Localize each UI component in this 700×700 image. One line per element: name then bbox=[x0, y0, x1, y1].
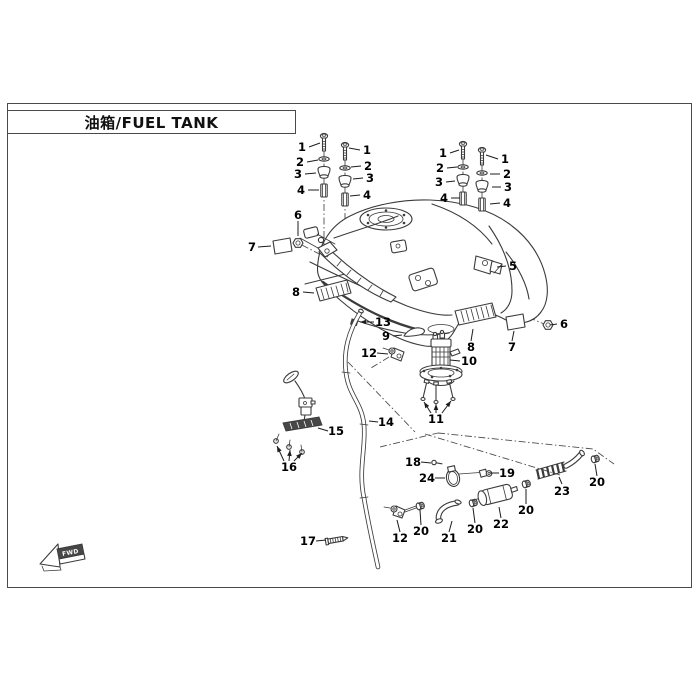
callout-21: 21 bbox=[441, 531, 457, 545]
callout-leader bbox=[316, 540, 326, 541]
fwd-arrow: FWD bbox=[40, 544, 85, 571]
callout-leader bbox=[351, 166, 361, 167]
callout-4: 4 bbox=[363, 188, 371, 202]
callout-4: 4 bbox=[503, 196, 511, 210]
callout-3: 3 bbox=[294, 167, 302, 181]
hose-clamp-3 bbox=[522, 480, 531, 489]
screw bbox=[325, 535, 348, 545]
exploded-diagram: FWD 112233446711223344567881391210111415… bbox=[0, 0, 700, 700]
hose-clamp-1 bbox=[416, 502, 425, 511]
tank-latch bbox=[390, 240, 407, 253]
leader-arrowhead bbox=[277, 446, 282, 452]
callout-leader bbox=[309, 143, 320, 147]
callout-leader bbox=[421, 462, 431, 463]
callout-2: 2 bbox=[436, 161, 444, 175]
callout-2: 2 bbox=[503, 167, 511, 181]
callout-10: 10 bbox=[461, 354, 477, 368]
callout-24: 24 bbox=[419, 471, 435, 485]
callout-1: 1 bbox=[298, 140, 306, 154]
callout-1: 1 bbox=[439, 146, 447, 160]
callout-13: 13 bbox=[375, 315, 391, 329]
callout-1: 1 bbox=[501, 152, 509, 166]
callout-1: 1 bbox=[363, 143, 371, 157]
leader-arrowhead bbox=[434, 404, 439, 410]
callout-leader bbox=[486, 155, 498, 159]
callout-22: 22 bbox=[493, 517, 509, 531]
leader-arrowhead bbox=[446, 401, 451, 407]
callout-leader bbox=[369, 421, 378, 422]
callout-8: 8 bbox=[467, 340, 475, 354]
callout-3: 3 bbox=[504, 180, 512, 194]
callout-4: 4 bbox=[440, 191, 448, 205]
hose-clamp-4 bbox=[591, 455, 600, 464]
clamp-screw bbox=[432, 460, 442, 464]
union-fitting bbox=[479, 469, 491, 477]
callout-leader bbox=[307, 160, 318, 162]
callout-14: 14 bbox=[378, 415, 394, 429]
callout-16: 16 bbox=[281, 460, 297, 474]
callout-leader bbox=[258, 246, 271, 247]
callout-5: 5 bbox=[509, 259, 517, 273]
callout-12: 12 bbox=[361, 346, 377, 360]
callout-15: 15 bbox=[328, 424, 344, 438]
callout-20: 20 bbox=[467, 522, 483, 536]
callout-leader bbox=[473, 508, 475, 523]
rubber-pad-right bbox=[506, 314, 525, 330]
callout-leader bbox=[490, 203, 500, 204]
callout-11: 11 bbox=[428, 412, 444, 426]
callout-18: 18 bbox=[405, 455, 421, 469]
callout-17: 17 bbox=[300, 534, 316, 548]
callout-3: 3 bbox=[366, 171, 374, 185]
callout-leader bbox=[450, 150, 459, 153]
callout-leader bbox=[303, 292, 314, 293]
callout-4: 4 bbox=[297, 183, 305, 197]
corrugated-hose bbox=[536, 449, 585, 479]
callout-leader bbox=[447, 167, 457, 168]
callout-20: 20 bbox=[589, 475, 605, 489]
callout-20: 20 bbox=[518, 503, 534, 517]
callout-leader bbox=[349, 148, 360, 150]
callout-9: 9 bbox=[382, 329, 390, 343]
fuel-filter bbox=[471, 482, 519, 508]
callout-8: 8 bbox=[292, 285, 300, 299]
hose-clamp-2 bbox=[469, 499, 478, 508]
catalog-page: 油箱/FUEL TANK bbox=[0, 0, 700, 700]
fuel-sensor-lower bbox=[384, 506, 416, 518]
callout-7: 7 bbox=[248, 240, 256, 254]
callout-leader bbox=[559, 477, 562, 484]
leader-arrowhead bbox=[360, 320, 366, 325]
callout-leader bbox=[446, 181, 455, 182]
band-clamp bbox=[445, 466, 480, 488]
pump-bolts bbox=[421, 379, 455, 403]
callout-19: 19 bbox=[499, 466, 515, 480]
callout-6: 6 bbox=[560, 317, 568, 331]
elbow-hose bbox=[435, 499, 462, 524]
callout-leader bbox=[305, 173, 316, 174]
side-bracket bbox=[490, 261, 502, 274]
callout-6: 6 bbox=[294, 208, 302, 222]
callout-7: 7 bbox=[508, 340, 516, 354]
callout-leader bbox=[420, 510, 421, 525]
leader-arrowhead bbox=[424, 402, 429, 408]
callout-leader bbox=[318, 428, 328, 431]
callout-leader bbox=[353, 178, 363, 179]
callout-20: 20 bbox=[413, 524, 429, 538]
callout-12: 12 bbox=[392, 531, 408, 545]
rubber-pad-left bbox=[273, 238, 292, 254]
callout-leader bbox=[350, 195, 360, 196]
petcock bbox=[282, 369, 322, 431]
callout-3: 3 bbox=[435, 175, 443, 189]
callout-leader bbox=[450, 360, 460, 361]
hex-nut-left bbox=[293, 239, 303, 248]
callout-23: 23 bbox=[554, 484, 570, 498]
callout-leader bbox=[377, 353, 388, 354]
